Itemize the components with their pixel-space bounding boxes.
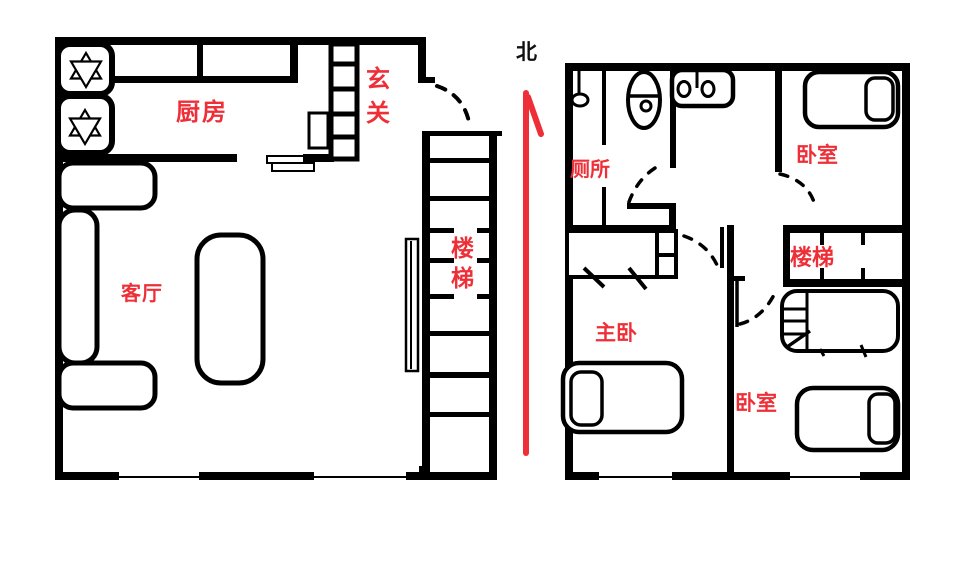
bed bbox=[563, 363, 682, 432]
shower-head-icon bbox=[572, 94, 588, 106]
bed bbox=[797, 388, 898, 450]
kitchen-counter-end bbox=[290, 45, 298, 83]
room-label-stairs-floor1: 楼梯 bbox=[451, 234, 481, 294]
bed bbox=[805, 72, 898, 127]
window bbox=[599, 476, 672, 478]
wall-bottom bbox=[672, 472, 790, 480]
door-swing-arc bbox=[740, 291, 776, 324]
wall-bedroom bbox=[775, 63, 782, 172]
room-label-toilet: 厕所 bbox=[570, 158, 610, 181]
stair-tread bbox=[861, 233, 865, 245]
wardrobe bbox=[567, 231, 676, 289]
stair-tread bbox=[430, 331, 489, 336]
room-label-kitchen: 厨房 bbox=[176, 99, 228, 127]
stair-tread bbox=[477, 294, 489, 299]
wall-bathroom-bottom bbox=[669, 203, 676, 227]
bed-pillow bbox=[869, 394, 895, 443]
tv bbox=[406, 239, 418, 371]
wall-bottom bbox=[55, 472, 119, 480]
bed-pillow bbox=[571, 372, 602, 425]
room-label-bedroom-top: 卧室 bbox=[796, 143, 838, 167]
door-swing-arc bbox=[780, 174, 816, 209]
stair-tread bbox=[430, 372, 489, 378]
toilet-flush bbox=[641, 101, 651, 111]
floor1-walls bbox=[55, 37, 502, 480]
wall-stairs-top bbox=[783, 225, 907, 233]
wall-bottom bbox=[406, 472, 497, 480]
sofa-arm bbox=[59, 363, 155, 408]
room-label-entry: 玄关 bbox=[366, 62, 394, 130]
door-swing-arc bbox=[629, 168, 655, 202]
entry-shoe-cabinet bbox=[331, 44, 357, 159]
wall-room-divider bbox=[727, 225, 734, 472]
north-arrow-head bbox=[528, 97, 541, 134]
bathroom bbox=[572, 70, 660, 225]
door-jamb bbox=[733, 276, 745, 281]
sink-basin-icon bbox=[678, 82, 690, 97]
stair-tread bbox=[861, 268, 865, 280]
room-label-stairs-floor2: 楼梯 bbox=[790, 246, 834, 271]
sink-basin-icon bbox=[702, 82, 714, 97]
bed bbox=[782, 291, 898, 357]
entry-door-jamb bbox=[418, 77, 435, 83]
floor1-plan bbox=[55, 37, 502, 480]
room-label-living-room: 客厅 bbox=[121, 282, 163, 305]
stair-tread bbox=[820, 233, 824, 245]
sofa-body bbox=[59, 210, 97, 363]
stair-tread bbox=[430, 196, 489, 201]
window bbox=[790, 476, 860, 478]
wall-stairs-left bbox=[783, 225, 790, 285]
sofa-arm bbox=[59, 163, 155, 208]
stair-tread bbox=[430, 158, 489, 163]
floor2-plan bbox=[563, 63, 910, 480]
wall-bathroom-bottom bbox=[627, 203, 676, 209]
bed-pillow bbox=[866, 78, 893, 120]
coffee-table bbox=[197, 235, 263, 383]
entry-door-jamb bbox=[418, 37, 426, 83]
stove-cabinet bbox=[58, 44, 112, 153]
floor-plan-canvas: 厨房 玄关 客厅 楼梯 北 厕所 卧室 主卧 楼梯 卧室 bbox=[0, 0, 964, 583]
kitchen-counter bbox=[112, 76, 297, 83]
stair-tread bbox=[430, 228, 454, 233]
kitchen-appliance bbox=[309, 113, 328, 148]
stair-tread bbox=[430, 294, 454, 299]
wall-right bbox=[902, 63, 910, 480]
room-label-bedroom-bottom: 卧室 bbox=[735, 391, 777, 415]
window bbox=[119, 476, 199, 478]
sink-vanity bbox=[672, 70, 733, 106]
kitchen-counter-divider bbox=[197, 45, 203, 78]
north-arrow bbox=[526, 93, 541, 453]
wall-top bbox=[55, 37, 420, 45]
wall-stairs-bottom bbox=[783, 279, 903, 287]
wall-bottom bbox=[565, 472, 599, 480]
window bbox=[314, 476, 406, 478]
door-swing-arc bbox=[684, 236, 717, 265]
cabinet-outline bbox=[331, 44, 357, 159]
room-label-master-bedroom: 主卧 bbox=[595, 321, 637, 345]
wall-bottom bbox=[199, 472, 314, 480]
stair-tread bbox=[477, 228, 489, 233]
door-swing-arc bbox=[437, 86, 470, 128]
wall-bottom bbox=[860, 472, 910, 480]
compass-north-label: 北 bbox=[516, 40, 537, 64]
stair-tread bbox=[430, 412, 489, 417]
wall-right bbox=[489, 131, 497, 480]
stairs-rail bbox=[422, 131, 430, 480]
